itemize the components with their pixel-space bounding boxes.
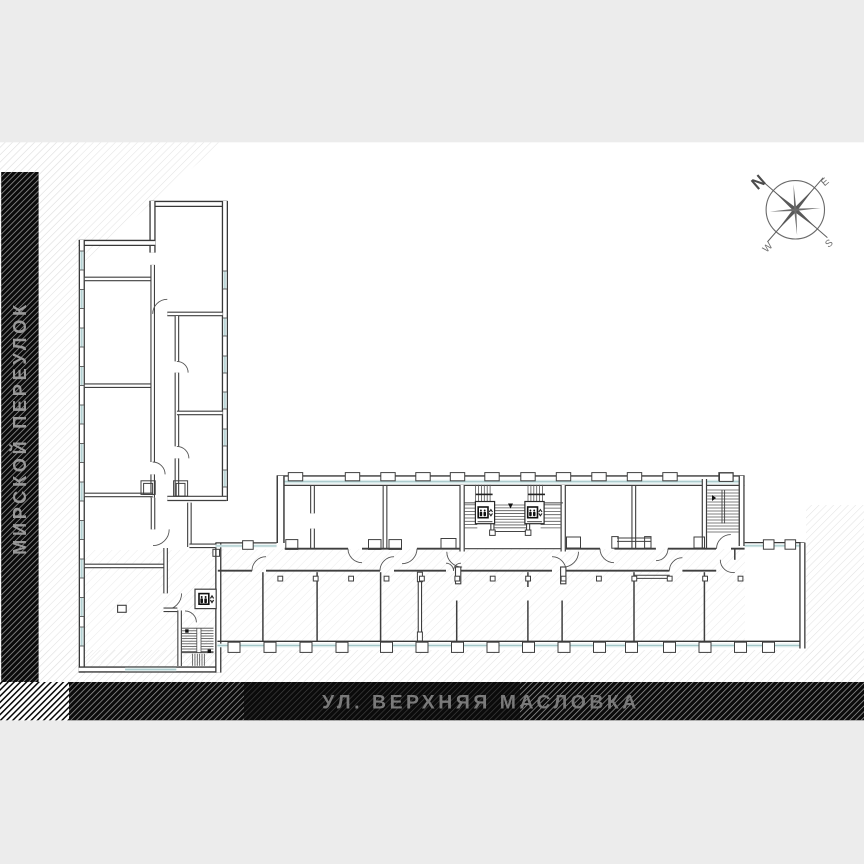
svg-text:МИРСКОЙ ПЕРЕУЛОК: МИРСКОЙ ПЕРЕУЛОК xyxy=(9,301,30,555)
svg-text:УЛ. ВЕРХНЯЯ МАСЛОВКА: УЛ. ВЕРХНЯЯ МАСЛОВКА xyxy=(322,692,640,714)
